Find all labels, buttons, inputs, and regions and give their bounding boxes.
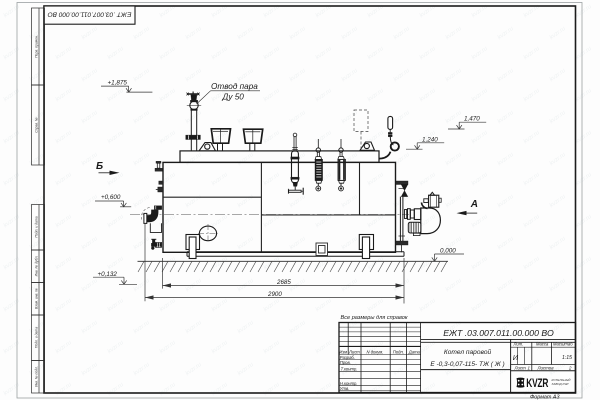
svg-text:Е -0,3-0,07-115- ТЖ ( Ж ): Е -0,3-0,07-115- ТЖ ( Ж ): [430, 361, 504, 368]
svg-text:Подп. и дата: Подп. и дата: [35, 216, 39, 237]
svg-text:Инв. № дубл.: Инв. № дубл.: [35, 256, 39, 277]
svg-text:ЗАВОД РЭР: ЗАВОД РЭР: [552, 382, 569, 386]
svg-text:ЕЖТ .03.007.011.00.000 ВО: ЕЖТ .03.007.011.00.000 ВО: [443, 328, 554, 338]
svg-text:Справ. №: Справ. №: [35, 117, 39, 133]
svg-text:Инв. № подл.: Инв. № подл.: [35, 366, 39, 387]
svg-text:Листов: Листов: [537, 366, 555, 371]
svg-text:Формат А3: Формат А3: [530, 395, 560, 400]
svg-text:ЕЖТ .03.007.011.00.000 ВО: ЕЖТ .03.007.011.00.000 ВО: [48, 10, 132, 17]
svg-text:Утв.: Утв.: [340, 386, 350, 391]
svg-text:0,000: 0,000: [440, 247, 456, 254]
svg-text:Все размеры для справок: Все размеры для справок: [341, 315, 408, 321]
svg-text:Котел паровой: Котел паровой: [444, 348, 492, 356]
svg-text:Ду 50: Ду 50: [222, 93, 245, 102]
svg-text:1,470: 1,470: [464, 115, 480, 122]
svg-text:Лит.: Лит.: [513, 342, 524, 347]
svg-text:Лист: Лист: [348, 349, 360, 354]
svg-text:Масштаб: Масштаб: [553, 342, 573, 347]
svg-text:Дата: Дата: [408, 349, 421, 354]
svg-text:Лист: Лист: [514, 366, 527, 371]
svg-text:1:15: 1:15: [562, 355, 572, 361]
svg-text:1,240: 1,240: [422, 136, 438, 143]
svg-text:2: 2: [568, 366, 572, 371]
svg-text:N докум.: N докум.: [367, 349, 384, 354]
svg-text:Изм: Изм: [339, 349, 347, 354]
svg-text:+0,132: +0,132: [98, 271, 118, 278]
svg-text:Т.контр.: Т.контр.: [341, 367, 358, 372]
svg-text:Перв. примен.: Перв. примен.: [35, 35, 39, 58]
svg-text:KVZR: KVZR: [526, 378, 549, 391]
svg-text:И: И: [513, 353, 519, 362]
svg-text:2900: 2900: [267, 291, 282, 298]
svg-text:Подп.: Подп.: [393, 349, 404, 354]
svg-text:Пров.: Пров.: [340, 360, 351, 365]
svg-text:Подп. и дата: Подп. и дата: [35, 327, 39, 348]
svg-text:+1,875: +1,875: [108, 80, 128, 87]
svg-text:Взам. инв. №: Взам. инв. №: [35, 288, 39, 309]
svg-text:+0,600: +0,600: [101, 194, 121, 201]
svg-text:Б: Б: [96, 161, 103, 172]
svg-text:Масса: Масса: [536, 342, 549, 347]
svg-text:2685: 2685: [276, 279, 291, 286]
svg-text:А: А: [470, 199, 478, 210]
svg-text:Отвод пара: Отвод пара: [211, 82, 258, 91]
